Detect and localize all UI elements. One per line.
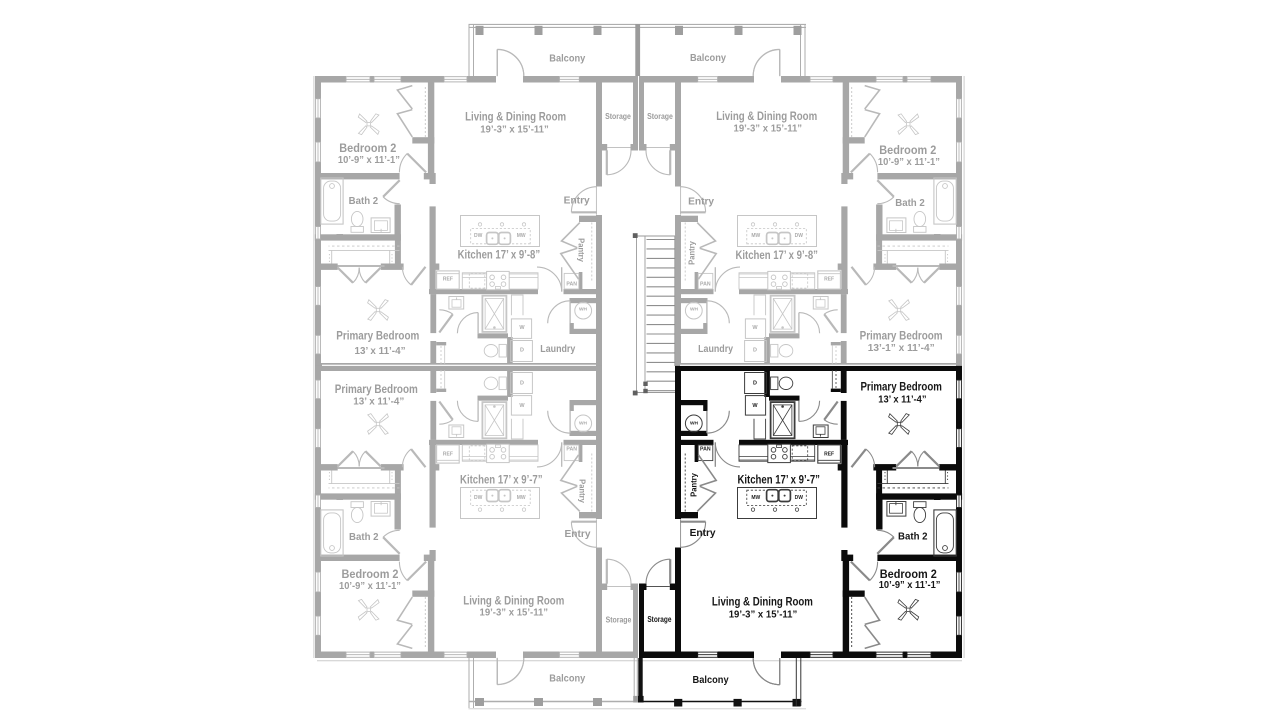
svg-text:Entry: Entry: [690, 528, 716, 539]
svg-text:DW: DW: [474, 233, 483, 239]
svg-text:Pantry: Pantry: [578, 479, 587, 503]
svg-text:PAN: PAN: [566, 447, 577, 453]
svg-text:19’-3” x 15’-11”: 19’-3” x 15’-11”: [734, 123, 803, 135]
svg-text:Laundry: Laundry: [540, 344, 575, 355]
svg-text:Balcony: Balcony: [693, 674, 729, 686]
svg-text:WH: WH: [579, 307, 588, 313]
svg-text:W: W: [519, 325, 525, 331]
svg-text:Bedroom 2: Bedroom 2: [339, 141, 396, 155]
svg-text:WH: WH: [690, 307, 699, 313]
svg-text:WH: WH: [690, 420, 699, 426]
svg-text:10’-9” x 11’-1”: 10’-9” x 11’-1”: [878, 156, 940, 168]
svg-text:Primary Bedroom: Primary Bedroom: [335, 382, 418, 396]
svg-text:D: D: [520, 381, 524, 387]
svg-text:WH: WH: [579, 420, 588, 426]
svg-text:Storage: Storage: [605, 112, 631, 121]
svg-text:D: D: [753, 348, 757, 354]
svg-text:10’-9” x 11’-1”: 10’-9” x 11’-1”: [879, 579, 941, 591]
svg-text:Pantry: Pantry: [690, 473, 699, 497]
svg-text:DW: DW: [795, 495, 804, 501]
svg-text:W: W: [752, 325, 758, 331]
svg-text:Kitchen 17’ x 9’-7”: Kitchen 17’ x 9’-7”: [737, 473, 820, 487]
svg-text:Primary Bedroom: Primary Bedroom: [860, 328, 943, 342]
svg-text:Balcony: Balcony: [690, 52, 726, 64]
svg-text:Balcony: Balcony: [549, 673, 585, 685]
svg-text:Storage: Storage: [606, 616, 632, 625]
svg-text:Pantry: Pantry: [577, 238, 586, 262]
svg-text:DW: DW: [474, 495, 483, 501]
svg-text:Bedroom 2: Bedroom 2: [342, 567, 399, 581]
svg-text:DW: DW: [795, 233, 804, 239]
svg-text:Living & Dining Room: Living & Dining Room: [465, 110, 566, 124]
svg-text:Kitchen 17’ x 9’-7”: Kitchen 17’ x 9’-7”: [460, 473, 543, 487]
svg-text:PAN: PAN: [566, 281, 577, 287]
svg-text:13’ x 11’-4”: 13’ x 11’-4”: [878, 394, 926, 406]
svg-text:19’-3” x 15’-11”: 19’-3” x 15’-11”: [729, 609, 798, 621]
svg-text:REF: REF: [443, 276, 453, 282]
svg-text:Living & Dining Room: Living & Dining Room: [463, 594, 564, 608]
svg-text:Bath 2: Bath 2: [349, 195, 379, 207]
svg-text:MW: MW: [517, 495, 526, 501]
svg-text:Bath 2: Bath 2: [895, 197, 925, 209]
svg-text:REF: REF: [824, 276, 834, 282]
svg-text:Primary Bedroom: Primary Bedroom: [860, 379, 942, 393]
svg-text:MW: MW: [751, 233, 760, 239]
svg-text:13’ x 11’-4”: 13’ x 11’-4”: [355, 345, 406, 357]
svg-text:Pantry: Pantry: [688, 241, 697, 265]
svg-text:REF: REF: [443, 452, 453, 458]
svg-text:Laundry: Laundry: [698, 344, 733, 355]
svg-text:13’ x 11’-4”: 13’ x 11’-4”: [353, 396, 404, 408]
svg-text:Entry: Entry: [564, 196, 590, 207]
svg-text:Kitchen 17’ x 9’-8”: Kitchen 17’ x 9’-8”: [458, 248, 541, 262]
svg-text:Balcony: Balcony: [549, 52, 585, 64]
svg-text:19’-3” x 15’-11”: 19’-3” x 15’-11”: [480, 607, 549, 619]
svg-text:Living & Dining Room: Living & Dining Room: [712, 594, 813, 608]
svg-text:REF: REF: [824, 452, 834, 458]
svg-text:19’-3” x 15’-11”: 19’-3” x 15’-11”: [480, 123, 549, 135]
svg-text:Storage: Storage: [647, 615, 672, 624]
svg-text:MW: MW: [517, 233, 526, 239]
svg-text:Entry: Entry: [688, 196, 714, 207]
svg-text:10’-9” x 11’-1”: 10’-9” x 11’-1”: [339, 580, 401, 592]
svg-text:Kitchen 17’ x 9’-8”: Kitchen 17’ x 9’-8”: [735, 248, 818, 262]
svg-text:10’-9” x 11’-1”: 10’-9” x 11’-1”: [338, 154, 400, 166]
svg-text:Bath 2: Bath 2: [349, 531, 379, 543]
svg-text:PAN: PAN: [700, 281, 711, 287]
svg-text:PAN: PAN: [700, 447, 711, 453]
svg-text:Primary Bedroom: Primary Bedroom: [336, 329, 419, 343]
svg-text:Bath 2: Bath 2: [898, 531, 928, 543]
svg-text:D: D: [753, 381, 757, 387]
svg-text:W: W: [519, 403, 525, 409]
svg-text:13’-1” x 11’-4”: 13’-1” x 11’-4”: [868, 342, 935, 354]
svg-text:W: W: [752, 403, 758, 409]
svg-text:Living & Dining Room: Living & Dining Room: [716, 109, 817, 123]
svg-text:Entry: Entry: [565, 529, 591, 540]
svg-text:D: D: [520, 348, 524, 354]
svg-text:MW: MW: [751, 495, 760, 501]
svg-text:Storage: Storage: [647, 112, 673, 121]
